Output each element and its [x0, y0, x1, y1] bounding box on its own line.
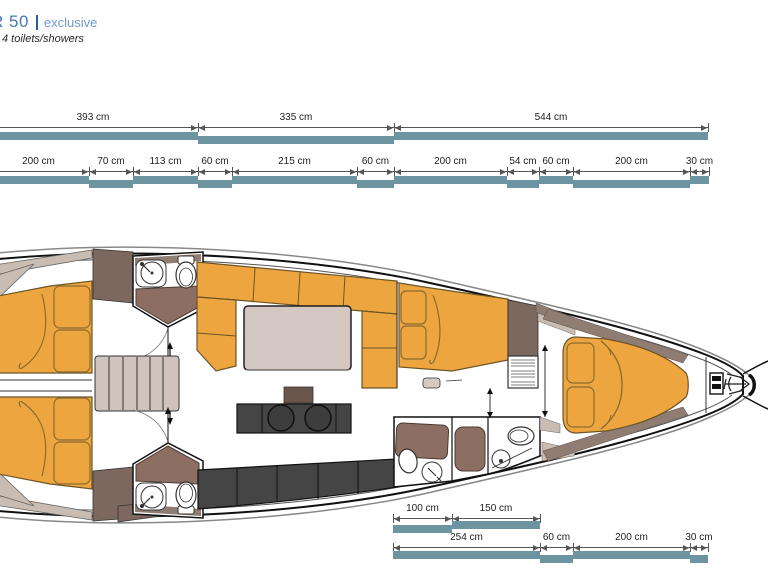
dimension-arrow-right: [500, 169, 506, 175]
dimension-extent-bar: [357, 180, 394, 188]
dimension-line: [198, 127, 394, 128]
sink-drain: [151, 272, 154, 275]
dimension-label: 215 cm: [250, 156, 340, 167]
dimension-extent-bar: [0, 132, 198, 140]
dimension-arrow-right: [683, 545, 689, 551]
dimension-arrow-left: [199, 125, 205, 131]
dimension-arrow-right: [387, 169, 393, 175]
dimension-extent-bar: [539, 176, 573, 184]
galley-sink-icon: [268, 405, 294, 431]
title-separator: [36, 15, 38, 30]
dimension-line: [573, 547, 690, 548]
dimension-arrow-left: [541, 545, 547, 551]
stool: [423, 378, 440, 388]
dimension-arrow-left: [691, 169, 697, 175]
dimension-arrow-left: [574, 545, 580, 551]
bow-flare-top: [743, 361, 768, 374]
dimension-tick: [708, 543, 709, 552]
dimension-line: [133, 171, 198, 172]
dimension-line: [394, 171, 507, 172]
dimension-extent-bar: [133, 176, 198, 184]
dimension-arrow-left: [134, 169, 140, 175]
dimension-label: 544 cm: [506, 112, 596, 123]
dimension-extent-bar: [540, 555, 573, 563]
header: R 50 exclusive: [0, 12, 97, 32]
shower-pad: [455, 427, 485, 471]
sofa-right-arm: [362, 311, 397, 388]
dimension-arrow-right: [683, 169, 689, 175]
dimension-extent-bar: [507, 180, 539, 188]
dimension-arrow-right: [82, 169, 88, 175]
boat-plan: [0, 0, 768, 576]
dimension-arrow-right: [566, 169, 572, 175]
dimension-label: 254 cm: [422, 532, 512, 543]
sink-drain: [151, 496, 154, 499]
dimension-extent-bar: [690, 176, 709, 184]
dimension-line: [573, 171, 690, 172]
dimension-arrow-left: [508, 169, 514, 175]
dimension-arrow-right: [445, 516, 451, 522]
dimension-arrow-left: [233, 169, 239, 175]
dimension-arrow-right: [701, 125, 707, 131]
dimension-arrow-left: [574, 169, 580, 175]
dimension-extent-bar: [198, 136, 394, 144]
dimension-arrow-left: [395, 169, 401, 175]
dimension-extent-bar: [198, 180, 232, 188]
galley-sink-icon: [305, 405, 331, 431]
louvered-locker: [508, 356, 538, 388]
dimension-arrow-right: [533, 545, 539, 551]
dimension-arrow-right: [126, 169, 132, 175]
dimension-line: [394, 127, 708, 128]
toilet-icon: [176, 482, 196, 508]
dimension-extent-bar: [0, 176, 89, 184]
wardrobe: [93, 249, 133, 303]
galley-module: [284, 387, 313, 403]
dimension-extent-bar: [573, 180, 690, 188]
dimension-extent-bar: [690, 555, 708, 563]
dimension-extent-bar: [89, 180, 133, 188]
dimension-extent-bar: [573, 551, 690, 559]
dimension-line: [393, 518, 452, 519]
dimension-arrow-left: [394, 516, 400, 522]
bow-flare-bottom: [743, 396, 768, 409]
faucet-base: [140, 262, 144, 266]
saloon-table: [244, 306, 351, 370]
model-name: R 50: [0, 12, 29, 32]
faucet-base: [140, 504, 144, 508]
dimension-label: 60 cm: [170, 156, 260, 167]
bow-stem: [749, 375, 754, 395]
dimension-extent-bar: [452, 521, 540, 529]
dimension-line: [0, 171, 89, 172]
dimension-arrow-left: [358, 169, 364, 175]
dimension-line: [452, 518, 540, 519]
dimension-arrow-left: [199, 169, 205, 175]
pillow: [401, 291, 426, 324]
dimension-arrow-left: [394, 545, 400, 551]
dimension-label: 150 cm: [451, 503, 541, 514]
dimension-arrow-right: [532, 169, 538, 175]
pillow: [54, 286, 90, 328]
dimension-label: 335 cm: [251, 112, 341, 123]
yacht-layout-diagram: R 50 exclusive 4 toilets/showers 393 cm3…: [0, 0, 768, 576]
dimension-arrow-right: [191, 169, 197, 175]
pillow: [567, 343, 594, 383]
toilet-icon: [176, 262, 196, 288]
dimension-arrow-right: [702, 169, 708, 175]
dimension-tick: [709, 167, 710, 176]
dimension-arrow-right: [350, 169, 356, 175]
dimension-tick: [708, 123, 709, 132]
dimension-arrow-right: [701, 545, 707, 551]
dimension-line: [0, 127, 198, 128]
dimension-arrow-left: [691, 545, 697, 551]
dimension-line: [393, 547, 540, 548]
dimension-extent-bar: [393, 551, 540, 559]
pillow: [567, 387, 594, 427]
features-subtitle: 4 toilets/showers: [2, 33, 84, 45]
dimension-extent-bar: [394, 132, 708, 140]
dimension-label: 30 cm: [655, 156, 745, 167]
edition-label: exclusive: [44, 15, 97, 30]
dimension-arrow-left: [540, 169, 546, 175]
pillow: [54, 330, 90, 372]
dimension-arrow-right: [387, 125, 393, 131]
toilet-icon: [508, 427, 534, 445]
dimension-extent-bar: [394, 176, 507, 184]
dimension-arrow-right: [225, 169, 231, 175]
wardrobe: [508, 300, 538, 356]
pillow: [54, 398, 90, 440]
dimension-arrow-right: [566, 545, 572, 551]
windlass-slot: [712, 376, 721, 381]
dimension-label: 393 cm: [48, 112, 138, 123]
dimension-arrow-left: [90, 169, 96, 175]
dimension-extent-bar: [232, 176, 357, 184]
dimension-label: 30 cm: [654, 532, 744, 543]
dimension-arrow-right: [191, 125, 197, 131]
pillow: [401, 326, 426, 359]
dimension-arrow-left: [395, 125, 401, 131]
dimension-line: [232, 171, 357, 172]
windlass-slot: [712, 384, 721, 389]
pillow: [54, 442, 90, 484]
